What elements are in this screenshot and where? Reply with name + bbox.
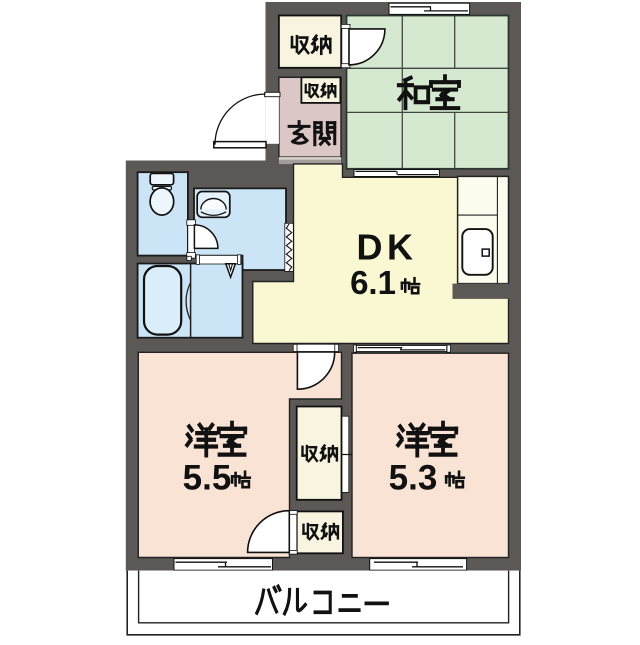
svg-text:5.3: 5.3 bbox=[389, 459, 438, 498]
svg-text:5.5: 5.5 bbox=[183, 459, 232, 498]
svg-text:DK: DK bbox=[357, 227, 418, 268]
svg-text:6.1: 6.1 bbox=[350, 264, 396, 301]
